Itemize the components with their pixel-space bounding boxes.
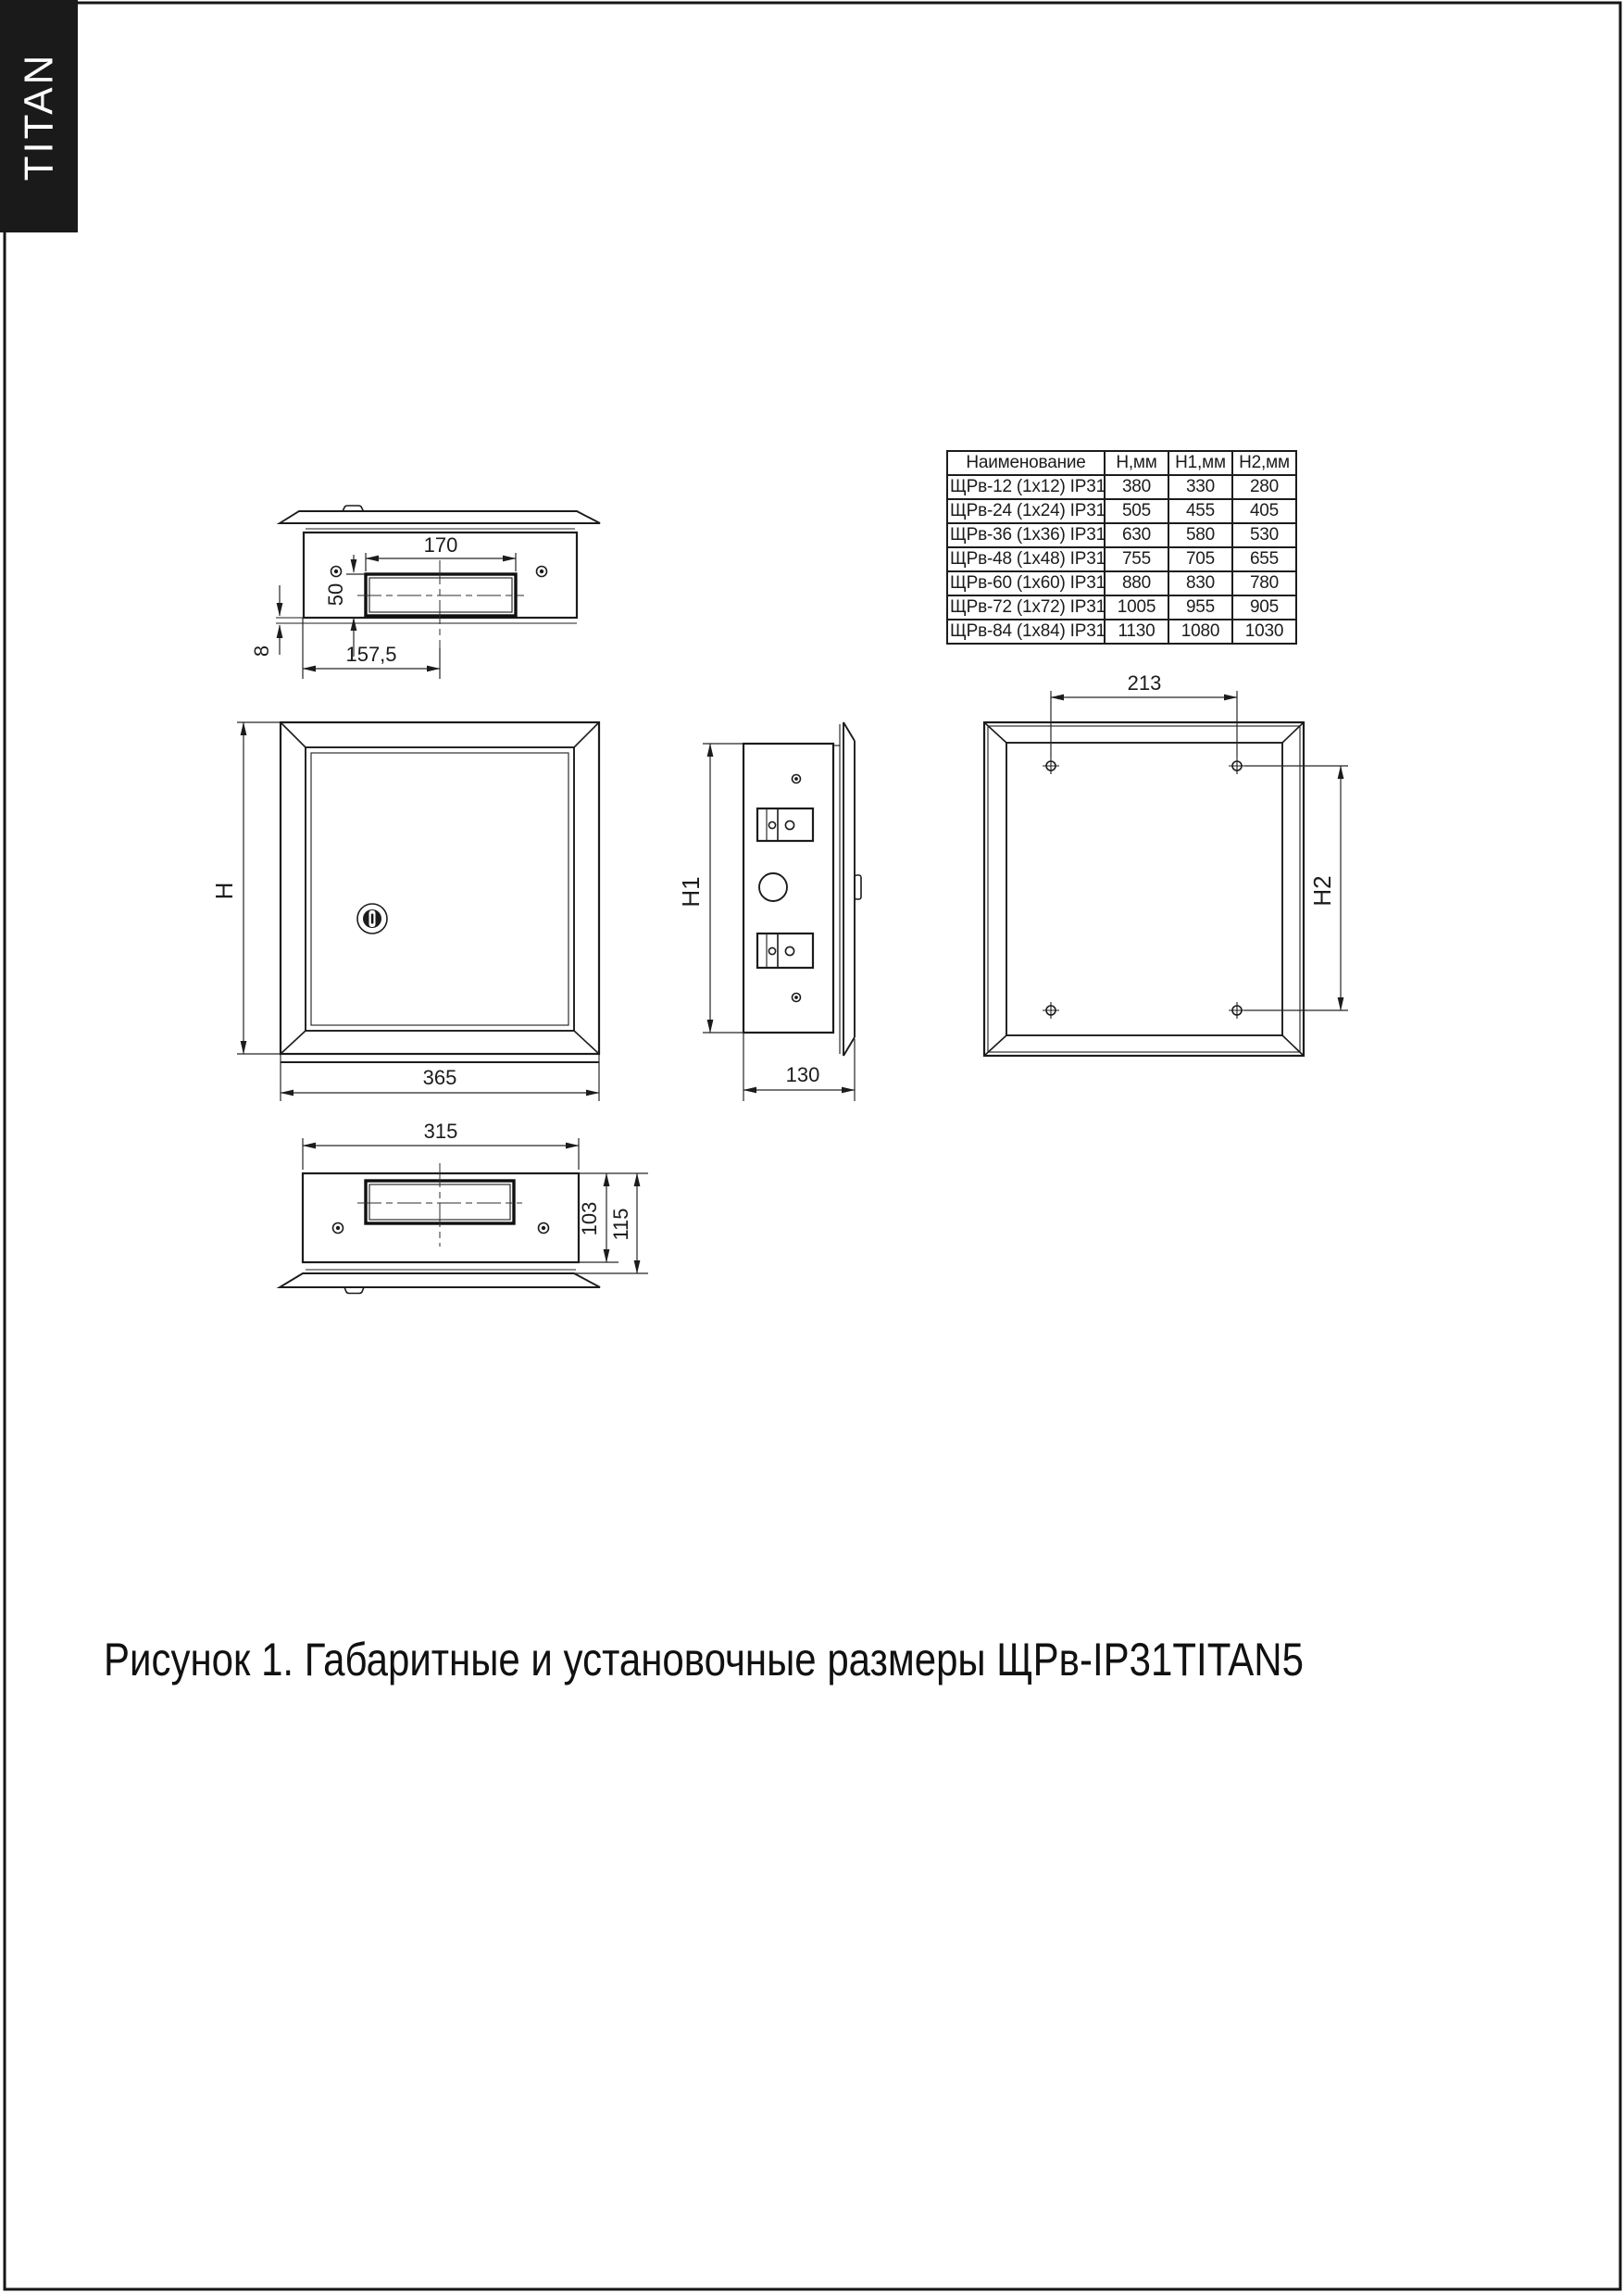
cell-name: ЩРв-24 (1х24) IP31 — [947, 499, 1105, 523]
rear-view: 213 H2 — [984, 671, 1348, 1056]
rear-panel — [1006, 743, 1282, 1035]
door-lock — [357, 904, 387, 933]
wall-mount-hole — [1229, 1002, 1245, 1019]
dimension-cutout-width: 170 — [366, 533, 516, 571]
dimension-width-365: 365 — [281, 1062, 599, 1101]
flange-tab — [344, 1287, 364, 1294]
dim-label: 157,5 — [345, 643, 396, 666]
frame-corner-bevels — [281, 722, 599, 1054]
front-view: H 365 — [210, 722, 599, 1101]
cell-h2: 530 — [1232, 523, 1296, 547]
col-header-h: Н,мм — [1105, 451, 1168, 475]
flange-outline — [280, 511, 600, 523]
cell-h1: 830 — [1168, 571, 1232, 595]
dimension-height-H1: H1 — [677, 744, 743, 1033]
wall-mount-hole — [1043, 758, 1059, 774]
cell-name: ЩРв-12 (1х12) IP31 — [947, 475, 1105, 499]
cell-name: ЩРв-60 (1х60) IP31 — [947, 571, 1105, 595]
table-row: ЩРв-12 (1х12) IP31 380 330 280 — [947, 475, 1296, 499]
mounting-hole — [793, 775, 801, 783]
dimension-cutout-offset: 157,5 — [303, 618, 440, 679]
cell-h1: 330 — [1168, 475, 1232, 499]
din-clip-lower — [757, 933, 813, 968]
mounting-hole — [333, 1223, 344, 1234]
datasheet-page: TITAN Наименование Н,мм Н1,мм Н2,мм ЩРв-… — [0, 0, 1624, 2293]
dimensions-table: Наименование Н,мм Н1,мм Н2,мм ЩРв-12 (1х… — [946, 450, 1297, 645]
dim-label: 103 — [578, 1202, 601, 1236]
cell-name: ЩРв-84 (1х84) IP31 — [947, 620, 1105, 644]
dim-label: 365 — [423, 1066, 457, 1089]
flange-tab-side — [855, 875, 861, 899]
rear-frame-second — [988, 726, 1300, 1052]
cell-name: ЩРв-36 (1х36) IP31 — [947, 523, 1105, 547]
side-body — [743, 744, 833, 1033]
cell-h1: 705 — [1168, 547, 1232, 571]
table-row: ЩРв-48 (1х48) IP31 755 705 655 — [947, 547, 1296, 571]
wall-mount-hole — [1229, 758, 1245, 774]
table-row: ЩРв-36 (1х36) IP31 630 580 530 — [947, 523, 1296, 547]
mounting-hole — [793, 994, 801, 1002]
cell-name: ЩРв-48 (1х48) IP31 — [947, 547, 1105, 571]
dim-label: 315 — [424, 1120, 458, 1143]
mounting-hole — [537, 567, 547, 577]
dim-label: 50 — [324, 583, 347, 606]
brand-banner: TITAN — [0, 0, 78, 232]
cell-name: ЩРв-72 (1х72) IP31 — [947, 595, 1105, 620]
technical-drawing-canvas: 170 50 8 157,5 — [0, 0, 1624, 2293]
mounting-hole — [331, 567, 342, 577]
dimension-cutout-height: 50 — [324, 555, 365, 657]
front-door — [306, 747, 574, 1031]
mounting-hole — [539, 1223, 549, 1234]
dim-label: H — [210, 883, 238, 900]
table-header-row: Наименование Н,мм Н1,мм Н2,мм — [947, 451, 1296, 475]
dimension-height-H: H — [210, 722, 281, 1054]
cell-h: 505 — [1105, 499, 1168, 523]
table-row: ЩРв-84 (1х84) IP31 1130 1080 1030 — [947, 620, 1296, 644]
side-view: H1 130 — [677, 722, 861, 1101]
figure-caption: Рисунок 1. Габаритные и установочные раз… — [104, 1633, 1304, 1686]
cell-h1: 580 — [1168, 523, 1232, 547]
dimension-hole-spacing-213: 213 — [1051, 671, 1237, 758]
cell-h2: 280 — [1232, 475, 1296, 499]
dimension-flange-lip: 8 — [250, 585, 280, 657]
table-row: ЩРв-24 (1х24) IP31 505 455 405 — [947, 499, 1296, 523]
frame-corner-bevels — [984, 722, 1304, 1056]
brand-logo-text: TITAN — [16, 52, 62, 181]
side-flange — [840, 722, 855, 1056]
col-header-name: Наименование — [947, 451, 1105, 475]
cell-h: 1005 — [1105, 595, 1168, 620]
col-header-h2: Н2,мм — [1232, 451, 1296, 475]
wall-mount-hole — [1043, 1002, 1059, 1019]
cell-h: 1130 — [1105, 620, 1168, 644]
din-clip-upper — [757, 808, 813, 841]
side-knockout-hole — [759, 873, 787, 901]
front-frame-outer — [281, 722, 599, 1054]
table-row: ЩРв-60 (1х60) IP31 880 830 780 — [947, 571, 1296, 595]
table-header: Наименование Н,мм Н1,мм Н2,мм — [947, 451, 1296, 475]
dim-label: 170 — [424, 533, 458, 557]
dim-label: 115 — [609, 1208, 632, 1240]
cell-h2: 905 — [1232, 595, 1296, 620]
dimension-hole-spacing-H2: H2 — [1244, 766, 1348, 1010]
cell-h: 755 — [1105, 547, 1168, 571]
enclosure-body — [303, 1173, 579, 1262]
flange-outline — [280, 1273, 600, 1287]
dim-label: 213 — [1128, 671, 1162, 695]
dim-label: 8 — [250, 645, 273, 657]
cell-h: 380 — [1105, 475, 1168, 499]
dimension-depth-130: 130 — [743, 1033, 855, 1101]
cell-h1: 955 — [1168, 595, 1232, 620]
cell-h: 630 — [1105, 523, 1168, 547]
cell-h2: 1030 — [1232, 620, 1296, 644]
cell-h: 880 — [1105, 571, 1168, 595]
dimension-width-315: 315 — [303, 1120, 579, 1170]
cell-h1: 455 — [1168, 499, 1232, 523]
cell-h1: 1080 — [1168, 620, 1232, 644]
dim-label: H2 — [1308, 875, 1336, 906]
top-view: 170 50 8 157,5 — [250, 506, 600, 679]
table-body: ЩРв-12 (1х12) IP31 380 330 280 ЩРв-24 (1… — [947, 475, 1296, 644]
bottom-view: 315 103 115 — [280, 1120, 648, 1294]
front-door-inner-line — [311, 753, 568, 1025]
dim-label: 130 — [786, 1063, 820, 1086]
cell-h2: 405 — [1232, 499, 1296, 523]
page-border — [5, 3, 1620, 2289]
dim-label: H1 — [677, 876, 705, 907]
col-header-h1: Н1,мм — [1168, 451, 1232, 475]
rear-frame-outer — [984, 722, 1304, 1056]
table-row: ЩРв-72 (1х72) IP31 1005 955 905 — [947, 595, 1296, 620]
cell-h2: 780 — [1232, 571, 1296, 595]
cell-h2: 655 — [1232, 547, 1296, 571]
